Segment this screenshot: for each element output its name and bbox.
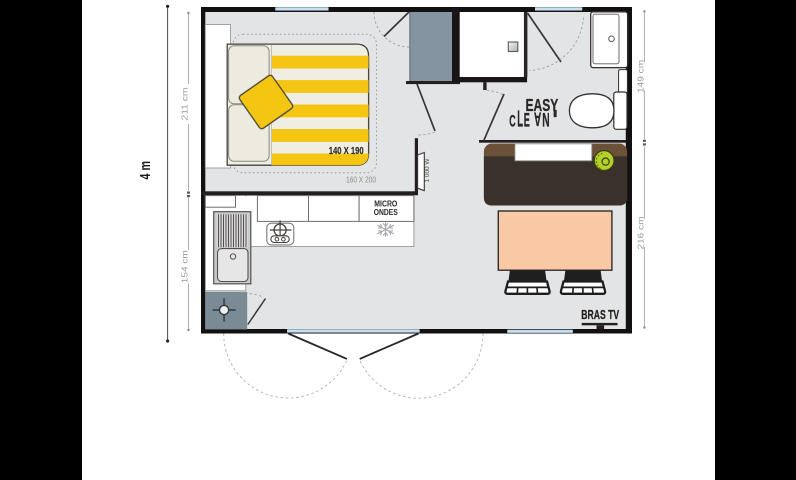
svg-text:149 cm: 149 cm (635, 60, 645, 93)
svg-text:E: E (524, 110, 530, 131)
svg-text:211 cm: 211 cm (180, 88, 190, 121)
svg-text:1 000 W: 1 000 W (424, 158, 431, 183)
svg-text:A: A (534, 107, 541, 128)
svg-text:ONDES: ONDES (374, 208, 399, 217)
svg-text:140 X 190: 140 X 190 (329, 145, 364, 157)
svg-text:4 m: 4 m (138, 161, 154, 180)
svg-text:216 cm: 216 cm (635, 217, 645, 250)
svg-text:154 cm: 154 cm (180, 250, 190, 283)
svg-text:L: L (517, 105, 523, 131)
svg-text:N: N (542, 110, 549, 131)
svg-text:BRAS TV: BRAS TV (581, 308, 619, 322)
svg-text:160 X 200: 160 X 200 (346, 175, 376, 185)
svg-text:C: C (509, 111, 515, 130)
